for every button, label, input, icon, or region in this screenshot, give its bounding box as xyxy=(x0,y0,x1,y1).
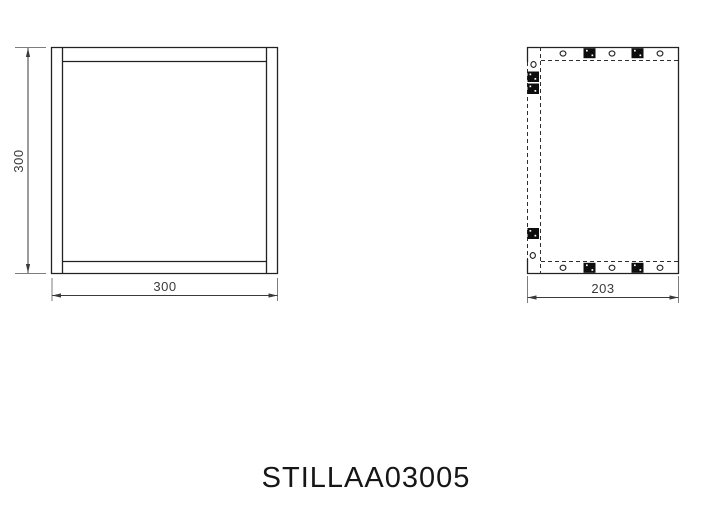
dimension-label: 300 xyxy=(11,149,26,172)
front-width-dimension: 300 xyxy=(52,278,278,301)
dimension-label: 203 xyxy=(591,281,614,296)
part-number-label: STILLAA03005 xyxy=(262,462,471,494)
screw-hole xyxy=(560,51,566,56)
arrowhead-right-icon xyxy=(670,295,679,299)
drawing-sheet: 300 300 xyxy=(0,0,724,520)
arrowhead-left-icon xyxy=(528,295,537,299)
technical-drawing: 300 300 xyxy=(0,0,724,520)
cam-fitting xyxy=(528,72,540,83)
side-depth-dimension: 203 xyxy=(528,276,679,303)
arrowhead-right-icon xyxy=(269,293,278,297)
front-height-dimension: 300 xyxy=(11,48,46,274)
side-view-outline xyxy=(527,47,679,274)
screw-hole xyxy=(530,253,535,259)
cam-fitting xyxy=(528,84,540,95)
screw-hole xyxy=(609,51,615,56)
side-view-hidden-lines xyxy=(528,47,680,274)
front-view-outline xyxy=(51,47,278,274)
arrowhead-down-icon xyxy=(26,264,30,273)
cam-fitting xyxy=(528,228,540,239)
cam-fitting xyxy=(632,263,644,273)
cam-fitting xyxy=(584,263,596,273)
screw-hole xyxy=(657,51,663,56)
screw-hole xyxy=(609,265,615,270)
side-view-left-fittings xyxy=(528,62,540,259)
screw-hole xyxy=(657,265,663,270)
arrowhead-up-icon xyxy=(26,48,30,57)
dimension-label: 300 xyxy=(153,279,176,294)
screw-hole xyxy=(531,62,536,68)
cam-fitting xyxy=(584,48,596,58)
screw-hole xyxy=(560,265,566,270)
arrowhead-left-icon xyxy=(52,293,61,297)
side-view-bottom-fittings xyxy=(560,263,663,273)
cam-fitting xyxy=(632,48,644,58)
side-view-top-fittings xyxy=(560,48,663,58)
